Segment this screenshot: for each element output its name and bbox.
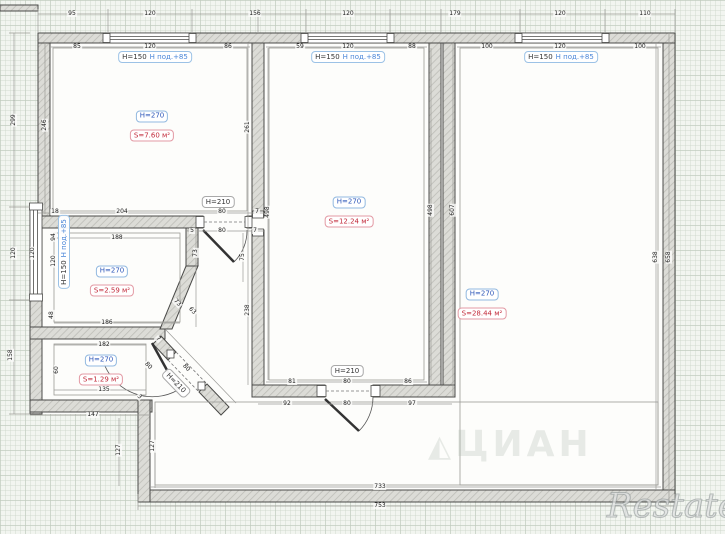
dim-label: 48 (49, 310, 55, 320)
dim-label: 60 (54, 365, 60, 375)
dim-label: 80 (342, 379, 352, 385)
dim-label: 238 (245, 303, 251, 316)
dim-label: 81 (287, 379, 297, 385)
door-jamb (371, 386, 380, 397)
room-area-label: S=7.60 м² (130, 130, 174, 142)
dim-label: 7 (254, 209, 260, 215)
room-area-label: S=1.29 м² (79, 374, 123, 386)
room-label: H=270S=7.60 м² (130, 103, 174, 142)
wall-room2-bottom-b (373, 385, 455, 397)
wall-diagonal-upper (160, 266, 198, 329)
dim-label: 80 (217, 209, 227, 215)
floor-plan-screenshot: { "plan": { "rooms": [ {"height_label":"… (0, 0, 725, 534)
room-label: H=270S=1.29 м² (79, 347, 123, 386)
dim-label: 127 (150, 439, 156, 452)
dim-label: 156 (248, 11, 261, 17)
dim-label: 658 (666, 250, 672, 263)
door-jamb (198, 382, 205, 390)
dim-label: 299 (11, 113, 17, 126)
room-area-label: S=2.59 м² (90, 285, 134, 297)
dim-label: 120 (30, 246, 36, 259)
doors-layer (103, 211, 380, 431)
dim-label: 120 (341, 44, 354, 50)
window-room1 (103, 33, 196, 43)
door-jamb (245, 217, 252, 228)
dim-label: 188 (110, 235, 123, 241)
dim-label: 607 (450, 203, 456, 216)
room-label: H=270S=12.24 м² (325, 189, 374, 228)
dim-label: 92 (282, 401, 292, 407)
dim-label: 94 (51, 232, 57, 242)
door-jamb (317, 386, 326, 397)
door-label: H=210 (202, 196, 235, 208)
window-room2 (301, 33, 394, 43)
wall-room1-room2-lower (252, 230, 264, 397)
restate-watermark: Restate (607, 486, 725, 526)
window-label: H=150Н под.+85 (311, 51, 385, 63)
wall-hall-top-a (30, 216, 203, 228)
cian-logo-mark: ◭ (428, 429, 455, 464)
dim-label: 73 (193, 248, 199, 258)
dim-label: 85 (72, 44, 82, 50)
room-height-label: H=270 (333, 196, 366, 208)
dim-label: 5 (189, 228, 195, 234)
dim-label: 158 (8, 348, 14, 361)
dim-label: 86 (223, 44, 233, 50)
cian-watermark: ◭ЦИАН (428, 424, 618, 465)
wall-stub-top-left (0, 5, 38, 11)
dim-label: 75 (240, 252, 246, 262)
room-height-label: H=270 (96, 265, 129, 277)
wall-room1-room2-upper (252, 43, 264, 217)
wall-s259-bottom (30, 327, 165, 339)
window-label: H=150Н под.+85 (58, 215, 70, 289)
dim-label: 753 (373, 503, 386, 509)
door-jamb (167, 350, 174, 358)
dim-label: 95 (67, 11, 77, 17)
dim-label: 498 (428, 203, 434, 216)
dim-label: 246 (42, 118, 48, 131)
room-area-label: S=28.44 м² (458, 308, 507, 320)
dim-label: 135 (97, 387, 110, 393)
dim-label: 88 (407, 44, 417, 50)
dim-label: 7 (252, 228, 258, 234)
dim-label: 186 (100, 320, 113, 326)
dim-label: 127 (116, 443, 122, 456)
dim-label: 120 (553, 44, 566, 50)
window-room3 (515, 33, 609, 43)
dim-label: 18 (50, 209, 60, 215)
dim-label: 733 (373, 484, 386, 490)
dim-label: 120 (51, 254, 57, 267)
dim-label: 100 (480, 44, 493, 50)
wall-bottom (138, 490, 675, 502)
dim-label: 120 (341, 11, 354, 17)
room-height-label: H=270 (136, 110, 169, 122)
dim-label: 80 (217, 228, 227, 234)
dim-label: 498 (265, 205, 271, 218)
dim-label: 110 (638, 11, 651, 17)
dim-label: 59 (295, 44, 305, 50)
dim-label: 120 (143, 11, 156, 17)
room-label: H=270S=2.59 м² (90, 258, 134, 297)
dim-label: 120 (11, 246, 17, 259)
dim-label: 120 (553, 11, 566, 17)
room-label: H=270S=28.44 м² (458, 281, 507, 320)
dim-label: 97 (407, 401, 417, 407)
door-label: H=210 (331, 365, 364, 377)
dim-label: 179 (448, 11, 461, 17)
dim-label: 120 (143, 44, 156, 50)
wall-room2-bottom-a (252, 385, 325, 397)
dim-label: 147 (86, 412, 99, 418)
dim-label: 86 (403, 379, 413, 385)
door-jamb (196, 217, 204, 228)
room-height-label: H=270 (85, 354, 118, 366)
dim-label: 204 (115, 209, 128, 215)
room-area-label: S=12.24 м² (325, 216, 374, 228)
dim-label: 261 (245, 120, 251, 133)
window-label: H=150Н под.+85 (118, 51, 192, 63)
dim-label: 80 (342, 401, 352, 407)
room-height-label: H=270 (466, 288, 499, 300)
dim-label: 638 (653, 250, 659, 263)
door-leaf (203, 230, 234, 262)
dim-label: 100 (633, 44, 646, 50)
window-label: H=150Н под.+85 (524, 51, 598, 63)
